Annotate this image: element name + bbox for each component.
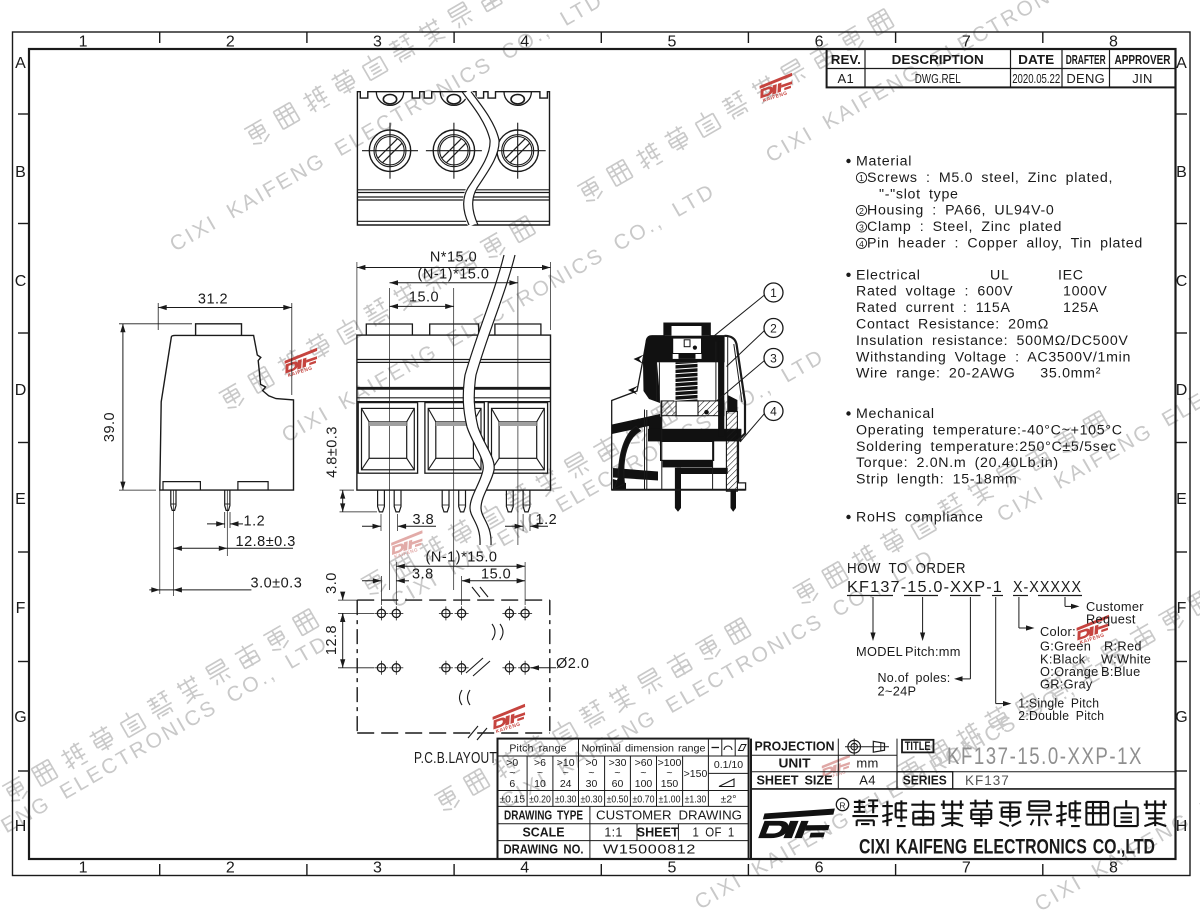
- svg-text:8: 8: [1109, 860, 1118, 877]
- svg-text:N*15.0: N*15.0: [430, 250, 477, 266]
- svg-text:1.2: 1.2: [244, 514, 266, 530]
- svg-text:Insulation resistance: 500MΩ/D: Insulation resistance: 500MΩ/DC500V: [856, 333, 1129, 349]
- svg-text:Rated voltage : 600V: Rated voltage : 600V: [856, 284, 1013, 300]
- svg-text:7: 7: [962, 860, 971, 877]
- svg-text:CIXI KAIFENG ELECTRONICS CO.,L: CIXI KAIFENG ELECTRONICS CO.,LTD: [859, 836, 1155, 859]
- svg-text:Color:: Color:: [1040, 624, 1076, 639]
- svg-text:6: 6: [815, 860, 824, 877]
- svg-text:KF137-15.0-XXP-1: KF137-15.0-XXP-1: [847, 579, 1003, 596]
- svg-text:3: 3: [373, 860, 382, 877]
- svg-text:4: 4: [520, 860, 529, 877]
- svg-text:F: F: [16, 600, 26, 617]
- svg-text:Pitch range: Pitch range: [509, 743, 566, 755]
- svg-text:TITLE: TITLE: [905, 741, 931, 753]
- svg-text:SCALE: SCALE: [523, 826, 565, 840]
- svg-text:Clamp : Steel, Zinc plated: Clamp : Steel, Zinc plated: [867, 219, 1062, 235]
- svg-text:PROJECTION: PROJECTION: [755, 740, 835, 754]
- svg-text:±0.30: ±0.30: [555, 794, 577, 806]
- svg-text:(N-1)*15.0: (N-1)*15.0: [418, 267, 490, 283]
- svg-text:Nominal dimension range: Nominal dimension range: [582, 743, 706, 755]
- svg-text:±0.15: ±0.15: [500, 794, 526, 806]
- svg-text:24: 24: [560, 778, 572, 790]
- svg-text:±2°: ±2°: [721, 794, 737, 806]
- svg-text:Housing : PA66, UL94V-0: Housing : PA66, UL94V-0: [867, 203, 1055, 219]
- svg-text:Mechanical: Mechanical: [856, 406, 935, 422]
- svg-text:A4: A4: [859, 773, 876, 788]
- svg-text:SHEET: SHEET: [637, 826, 679, 840]
- svg-text:1000V: 1000V: [1063, 284, 1108, 300]
- svg-text:2~24P: 2~24P: [878, 684, 917, 699]
- svg-text:HOW TO ORDER: HOW TO ORDER: [847, 561, 966, 577]
- svg-text:D: D: [1176, 382, 1188, 399]
- svg-text:7: 7: [962, 34, 971, 51]
- svg-text:B: B: [1176, 164, 1187, 181]
- svg-text:3.0±0.3: 3.0±0.3: [251, 576, 303, 592]
- svg-text:4.8±0.3: 4.8±0.3: [325, 426, 341, 478]
- svg-text:3.0: 3.0: [324, 572, 340, 594]
- svg-text:2: 2: [770, 322, 777, 336]
- svg-text:5: 5: [667, 34, 676, 51]
- svg-text:1:1: 1:1: [604, 826, 622, 840]
- svg-text:4: 4: [859, 239, 864, 249]
- svg-text:H: H: [15, 818, 27, 835]
- svg-text:X-XXXXX: X-XXXXX: [1013, 579, 1082, 596]
- svg-text:2: 2: [226, 860, 235, 877]
- svg-text:15.0: 15.0: [481, 567, 511, 583]
- svg-text:R: R: [839, 800, 845, 810]
- svg-text:Torque: 2.0N.m (20.40Lb.in): Torque: 2.0N.m (20.40Lb.in): [856, 455, 1059, 471]
- svg-text:MODEL: MODEL: [856, 644, 903, 659]
- svg-text:E: E: [1176, 491, 1187, 508]
- svg-text:6: 6: [815, 34, 824, 51]
- svg-text:P.C.B.LAYOUT: P.C.B.LAYOUT: [414, 750, 497, 767]
- svg-text:A: A: [1176, 55, 1187, 72]
- svg-text:4: 4: [770, 405, 777, 419]
- svg-text:mm: mm: [856, 756, 878, 771]
- svg-text:REV.: REV.: [831, 53, 861, 67]
- svg-text:JIN: JIN: [1132, 71, 1152, 86]
- svg-text:KF137-15.0-XXP-1X: KF137-15.0-XXP-1X: [947, 743, 1143, 770]
- svg-text:3.8: 3.8: [412, 567, 434, 583]
- svg-text:Screws : M5.0 steel, Zinc plat: Screws : M5.0 steel, Zinc plated,: [867, 170, 1113, 186]
- svg-text:Pitch:mm: Pitch:mm: [905, 644, 961, 659]
- svg-text:1: 1: [859, 173, 864, 183]
- svg-text:100: 100: [635, 778, 653, 790]
- svg-text:(N-1)*15.0: (N-1)*15.0: [426, 550, 498, 566]
- svg-text:"-"slot type: "-"slot type: [879, 186, 959, 202]
- svg-text:DENG: DENG: [1066, 71, 1105, 86]
- svg-text:Contact Resistance: 20mΩ: Contact Resistance: 20mΩ: [856, 317, 1049, 333]
- svg-text:>150: >150: [684, 768, 708, 780]
- svg-text:2:Double Pitch: 2:Double Pitch: [1018, 708, 1104, 723]
- svg-text:30: 30: [586, 778, 598, 790]
- svg-text:1.2: 1.2: [536, 512, 558, 528]
- svg-text:A1: A1: [838, 71, 855, 86]
- svg-text:3: 3: [859, 222, 864, 232]
- svg-text:DWG.REL: DWG.REL: [915, 71, 961, 86]
- svg-text:±1.30: ±1.30: [685, 794, 707, 806]
- svg-text:±0.50: ±0.50: [607, 794, 629, 806]
- svg-text:UL: UL: [990, 267, 1010, 283]
- svg-text:UNIT: UNIT: [779, 757, 811, 771]
- svg-text:3: 3: [373, 34, 382, 51]
- svg-text:60: 60: [612, 778, 624, 790]
- svg-text:KF137: KF137: [965, 773, 1010, 788]
- svg-text:15.0: 15.0: [409, 290, 439, 306]
- svg-text:3.8: 3.8: [413, 512, 435, 528]
- svg-text:1: 1: [770, 286, 777, 300]
- svg-text:Withstanding Voltage : AC3500V: Withstanding Voltage : AC3500V/1min: [856, 349, 1131, 365]
- svg-text:DRAWING TYPE: DRAWING TYPE: [504, 809, 583, 823]
- svg-text:DESCRIPTION: DESCRIPTION: [892, 53, 984, 67]
- svg-text:Rated current : 115A: Rated current : 115A: [856, 300, 1011, 316]
- svg-text:2: 2: [859, 206, 864, 216]
- svg-text:±0.30: ±0.30: [580, 794, 602, 806]
- svg-text:Operating temperature:-40°C~+1: Operating temperature:-40°C~+105°C: [856, 422, 1123, 438]
- svg-text:DATE: DATE: [1018, 53, 1054, 67]
- svg-text:31.2: 31.2: [198, 292, 228, 308]
- svg-text:Strip length: 15-18mm: Strip length: 15-18mm: [856, 472, 1017, 488]
- svg-text:8: 8: [1109, 34, 1118, 51]
- svg-text:DRAWING NO.: DRAWING NO.: [504, 843, 584, 857]
- svg-text:4: 4: [520, 34, 529, 51]
- svg-text:1 OF 1: 1 OF 1: [693, 826, 735, 840]
- svg-text:Ø2.0: Ø2.0: [556, 656, 589, 672]
- svg-text:B:Blue: B:Blue: [1101, 664, 1141, 679]
- svg-text:2: 2: [226, 34, 235, 51]
- svg-text:150: 150: [661, 778, 679, 790]
- svg-text:6: 6: [509, 778, 515, 790]
- svg-text:Pin header : Copper alloy, Tin: Pin header : Copper alloy, Tin plated: [867, 236, 1143, 252]
- svg-text:DRAFTER: DRAFTER: [1066, 53, 1106, 67]
- svg-text:SHEET SIZE: SHEET SIZE: [757, 774, 833, 788]
- svg-text:A: A: [15, 55, 26, 72]
- svg-text:IEC: IEC: [1058, 267, 1084, 283]
- svg-text:GR:Gray: GR:Gray: [1040, 677, 1093, 692]
- svg-text:E: E: [15, 491, 26, 508]
- svg-text:RoHS compliance: RoHS compliance: [856, 510, 984, 526]
- svg-text:Material: Material: [856, 154, 912, 170]
- svg-text:3: 3: [770, 352, 777, 366]
- svg-text:APPROVER: APPROVER: [1115, 53, 1171, 67]
- svg-text:F: F: [1177, 600, 1187, 617]
- svg-text:W15000812: W15000812: [603, 843, 696, 857]
- svg-text:G: G: [1175, 709, 1187, 726]
- svg-text:SERIES: SERIES: [903, 774, 947, 788]
- svg-text:1: 1: [79, 34, 88, 51]
- svg-text:B: B: [15, 164, 26, 181]
- svg-text:39.0: 39.0: [102, 412, 118, 442]
- svg-text:Request: Request: [1086, 612, 1136, 627]
- svg-text:±0.70: ±0.70: [632, 794, 654, 806]
- svg-text:±0.20: ±0.20: [529, 794, 551, 806]
- svg-text:1: 1: [79, 860, 88, 877]
- svg-text:125A: 125A: [1063, 300, 1099, 316]
- svg-text:C: C: [1176, 273, 1188, 290]
- svg-text:G: G: [14, 709, 26, 726]
- svg-text:12.8: 12.8: [324, 625, 340, 655]
- svg-text:C: C: [15, 273, 27, 290]
- svg-text:0.1/10: 0.1/10: [714, 759, 743, 771]
- svg-text:H: H: [1176, 818, 1188, 835]
- svg-text:5: 5: [667, 860, 676, 877]
- svg-text:CUSTOMER DRAWING: CUSTOMER DRAWING: [596, 809, 742, 823]
- svg-text:12.8±0.3: 12.8±0.3: [236, 534, 296, 550]
- svg-text:2020.05.22: 2020.05.22: [1012, 72, 1060, 86]
- svg-text:Electrical: Electrical: [856, 267, 921, 283]
- svg-text:Soldering temperature:250°C±5/: Soldering temperature:250°C±5/5sec: [856, 439, 1117, 455]
- svg-text:10: 10: [534, 778, 546, 790]
- svg-text:±1.00: ±1.00: [658, 794, 680, 806]
- svg-text:D: D: [15, 382, 27, 399]
- svg-text:Wire range: 20-2AWG 35.0mm²: Wire range: 20-2AWG 35.0mm²: [856, 366, 1101, 382]
